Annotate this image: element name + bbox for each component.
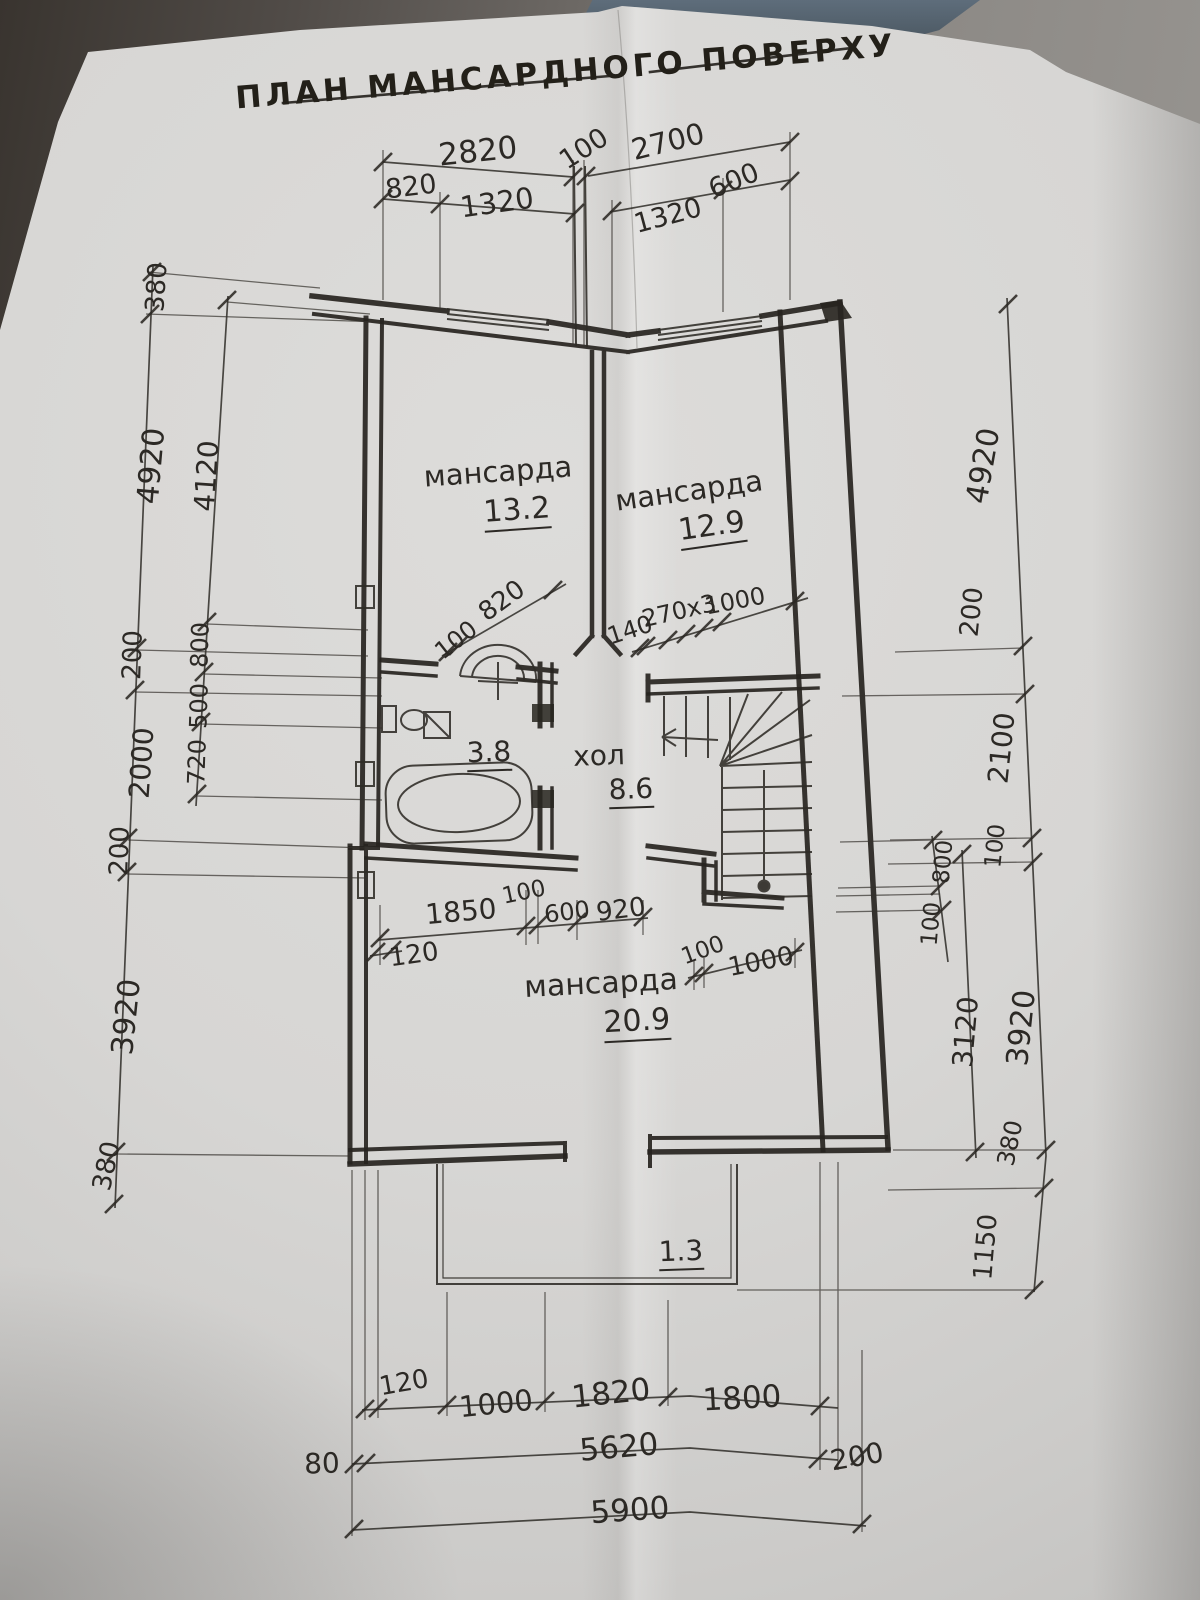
dimension-label: 100 bbox=[982, 823, 1009, 869]
dimension-label: 2820 bbox=[437, 132, 519, 171]
floor-plan-photo: 2820100270082013201320600380492020020002… bbox=[0, 0, 1200, 1600]
dimension-label: 380 bbox=[89, 1139, 125, 1193]
dimension-label: 800 bbox=[187, 622, 213, 669]
dimension-label: 1850 bbox=[424, 895, 497, 929]
dimension-label: 5900 bbox=[590, 1493, 671, 1529]
dimension-label: 100 bbox=[431, 616, 482, 663]
dimension-label: 1320 bbox=[458, 184, 535, 223]
dimension-label: 1800 bbox=[702, 1381, 782, 1416]
dimension-label: 1000 bbox=[726, 943, 796, 981]
room-area-1-3: 1.3 bbox=[658, 1237, 704, 1272]
dimension-label: 380 bbox=[142, 261, 171, 312]
dimension-label: 120 bbox=[377, 1366, 430, 1400]
room-area-3-8: 3.8 bbox=[466, 738, 512, 773]
dimension-label: 4920 bbox=[963, 426, 1006, 506]
dimension-label: 200 bbox=[828, 1439, 886, 1476]
dimension-label: 800 bbox=[931, 839, 958, 885]
dimension-label: 100 bbox=[500, 877, 548, 909]
dimension-label: 4920 bbox=[134, 427, 171, 506]
dimension-label: 1150 bbox=[970, 1213, 1002, 1281]
dimension-label: 200 bbox=[956, 586, 987, 638]
dimension-label: 720 bbox=[184, 739, 210, 786]
dimension-label: 5620 bbox=[578, 1429, 659, 1467]
room-label-mansarda-3: мансарда bbox=[523, 965, 678, 1003]
dimension-label: 4120 bbox=[191, 439, 224, 512]
room-label-hol: хол bbox=[573, 741, 626, 771]
dimension-label: 2000 bbox=[126, 726, 159, 799]
room-area-8-6: 8.6 bbox=[608, 775, 654, 810]
dimension-label: 80 bbox=[304, 1449, 341, 1478]
dimension-label: 120 bbox=[388, 939, 441, 972]
room-label-mansarda-1: мансарда bbox=[423, 452, 573, 491]
dimension-label: 820 bbox=[384, 170, 438, 203]
dimension-label: 200 bbox=[106, 826, 134, 877]
dimension-label: 3920 bbox=[108, 977, 146, 1056]
dimension-label: 200 bbox=[119, 630, 147, 681]
dimension-label: 3920 bbox=[1003, 988, 1041, 1067]
room-area-12-9: 12.9 bbox=[676, 507, 747, 551]
room-area-20-9: 20.9 bbox=[603, 1005, 672, 1043]
dimension-label: 100 bbox=[555, 124, 613, 175]
dimension-label: 3120 bbox=[949, 995, 983, 1068]
labels-layer: 2820100270082013201320600380492020020002… bbox=[0, 0, 1200, 1600]
dimension-label: 1820 bbox=[570, 1374, 652, 1413]
room-area-13-2: 13.2 bbox=[482, 493, 551, 533]
dimension-label: 500 bbox=[186, 683, 212, 730]
dimension-label: 2100 bbox=[984, 711, 1019, 785]
dimension-label: 100 bbox=[678, 933, 727, 970]
dimension-label: 820 bbox=[474, 576, 529, 626]
dimension-label: 2700 bbox=[629, 119, 708, 165]
dimension-label: 600 bbox=[543, 897, 591, 926]
dimension-label: 380 bbox=[993, 1118, 1026, 1168]
dimension-label: 1000 bbox=[458, 1386, 534, 1423]
dimension-label: 100 bbox=[919, 901, 946, 947]
dimension-label: 600 bbox=[705, 159, 763, 203]
dimension-label: 1320 bbox=[631, 194, 704, 238]
dimension-label: 920 bbox=[595, 894, 647, 926]
